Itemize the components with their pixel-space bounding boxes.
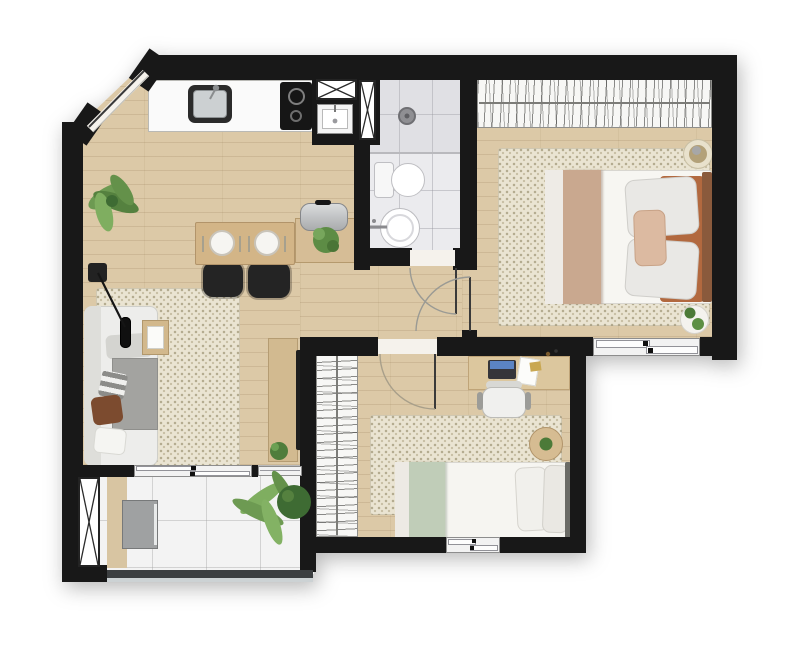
bed-single-runner-sage	[409, 462, 445, 540]
wardrobe-bedroom2-rod	[336, 355, 338, 535]
window-bedroom1-handle-2	[648, 348, 653, 353]
wall-bathroom-bottom-left	[370, 248, 412, 266]
pouf-button	[692, 146, 701, 155]
balcony-sliding-door-handle-2	[190, 472, 195, 476]
balcony-railing-glass	[107, 578, 313, 582]
balcony-fixed-glass-line	[260, 470, 300, 471]
floor-plan	[0, 0, 800, 648]
pillow-white	[93, 426, 128, 455]
wardrobe-bedroom1-rod	[479, 102, 710, 104]
cooktop-burner-large	[288, 88, 305, 105]
kettle-handle	[315, 200, 331, 205]
bed-double-pillow-blush	[633, 209, 667, 266]
washing-machine	[122, 500, 158, 549]
window-bedroom1-pane-1	[596, 340, 650, 348]
shower-drain	[398, 107, 416, 125]
office-chair-seat	[482, 387, 526, 418]
vent-shaft-balcony	[78, 477, 100, 567]
balcony-sliding-door-pane-2	[190, 471, 250, 476]
wall-bathroom-right	[460, 55, 477, 270]
window-bedroom1-handle-1	[643, 341, 648, 346]
office-chair-arm-left	[477, 392, 483, 410]
bathroom-door-threshold	[410, 250, 455, 266]
office-chair-arm-right	[525, 392, 531, 410]
wall-right	[712, 55, 737, 360]
wall-bedroom1-door-jamb	[462, 330, 477, 345]
pillow-brown	[90, 394, 124, 426]
wall-bathroom-left	[354, 140, 370, 270]
tv-console	[268, 338, 298, 462]
vent-shaft-kitchen-horizontal	[316, 79, 357, 100]
kitchen-sink-basin	[193, 90, 227, 118]
wall-bedroom2-bottom-right	[500, 537, 586, 553]
bed-double-fold	[545, 170, 563, 304]
washing-machine-door	[154, 504, 157, 545]
laptop-screen	[490, 361, 514, 369]
round-table	[529, 427, 563, 461]
bed-single-fold	[395, 462, 409, 540]
vent-shaft-kitchen-vertical	[359, 80, 376, 140]
washbasin	[380, 208, 420, 248]
kettle	[300, 203, 348, 231]
floor-lamp-base	[88, 263, 107, 282]
bedroom2-door-threshold	[378, 339, 437, 354]
wall-balcony-corner	[62, 565, 107, 582]
wall-bedroom2-right	[570, 337, 586, 553]
balcony-sliding-door-handle-1	[191, 466, 196, 470]
floor-lamp-head	[120, 317, 131, 348]
cooktop-burner-small	[290, 110, 302, 122]
balcony-railing-bar	[107, 570, 313, 578]
window-bedroom2-handle-1	[472, 539, 476, 543]
desk-note	[529, 361, 541, 371]
dining-chair-1	[203, 262, 243, 297]
wall-bathroom-bottom-right	[453, 248, 477, 270]
plate-setting-1	[209, 230, 235, 256]
wall-living-south-left	[83, 465, 134, 477]
window-bedroom2-handle-2	[470, 546, 474, 550]
wall-south-band-right	[700, 337, 737, 356]
window-bedroom2-pane-2	[470, 545, 498, 551]
side-table-book	[147, 326, 164, 349]
toilet-bowl	[391, 163, 425, 197]
plate-setting-2	[254, 230, 280, 256]
laundry-tank-basin-overlay	[322, 109, 348, 129]
bed-double-headboard	[702, 172, 712, 302]
bed-double-runner-tan	[563, 170, 601, 304]
dining-chair-2	[248, 262, 290, 298]
floor-plan-stage	[0, 0, 800, 648]
bedside-table	[680, 305, 709, 334]
balcony-fixed-glass	[258, 466, 302, 476]
window-bedroom1-pane-2	[646, 346, 698, 354]
balcony-sliding-door-pane-1	[136, 466, 196, 471]
floor-hallway	[300, 260, 482, 340]
wall-top	[152, 55, 737, 80]
wall-bedroom2-bottom-left	[300, 537, 446, 553]
